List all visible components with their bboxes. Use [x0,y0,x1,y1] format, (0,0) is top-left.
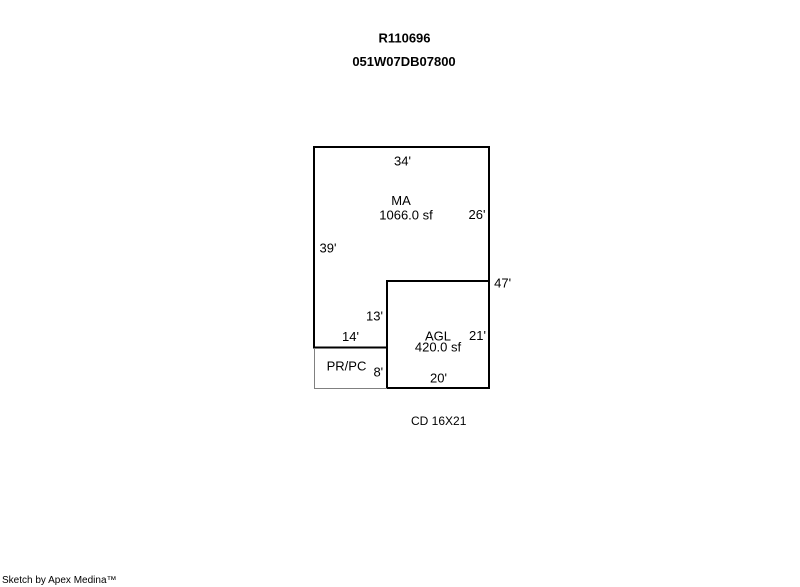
svg-text:051W07DB07800: 051W07DB07800 [352,54,455,69]
svg-text:14': 14' [342,329,359,344]
svg-text:MA: MA [391,193,411,208]
svg-text:PR/PC: PR/PC [327,359,367,374]
svg-text:R110696: R110696 [378,31,430,46]
svg-text:Sketch by Apex Medina™: Sketch by Apex Medina™ [2,575,117,586]
svg-text:47': 47' [494,276,511,291]
svg-text:39': 39' [320,241,337,256]
svg-text:1066.0 sf: 1066.0 sf [379,208,433,223]
svg-text:20': 20' [430,371,447,386]
svg-text:CD 16X21: CD 16X21 [411,414,467,428]
svg-text:420.0 sf: 420.0 sf [415,340,462,355]
svg-text:26': 26' [469,207,486,222]
svg-text:8': 8' [373,365,383,380]
svg-text:34': 34' [394,154,411,169]
svg-text:21': 21' [469,328,486,343]
svg-text:13': 13' [366,309,383,324]
